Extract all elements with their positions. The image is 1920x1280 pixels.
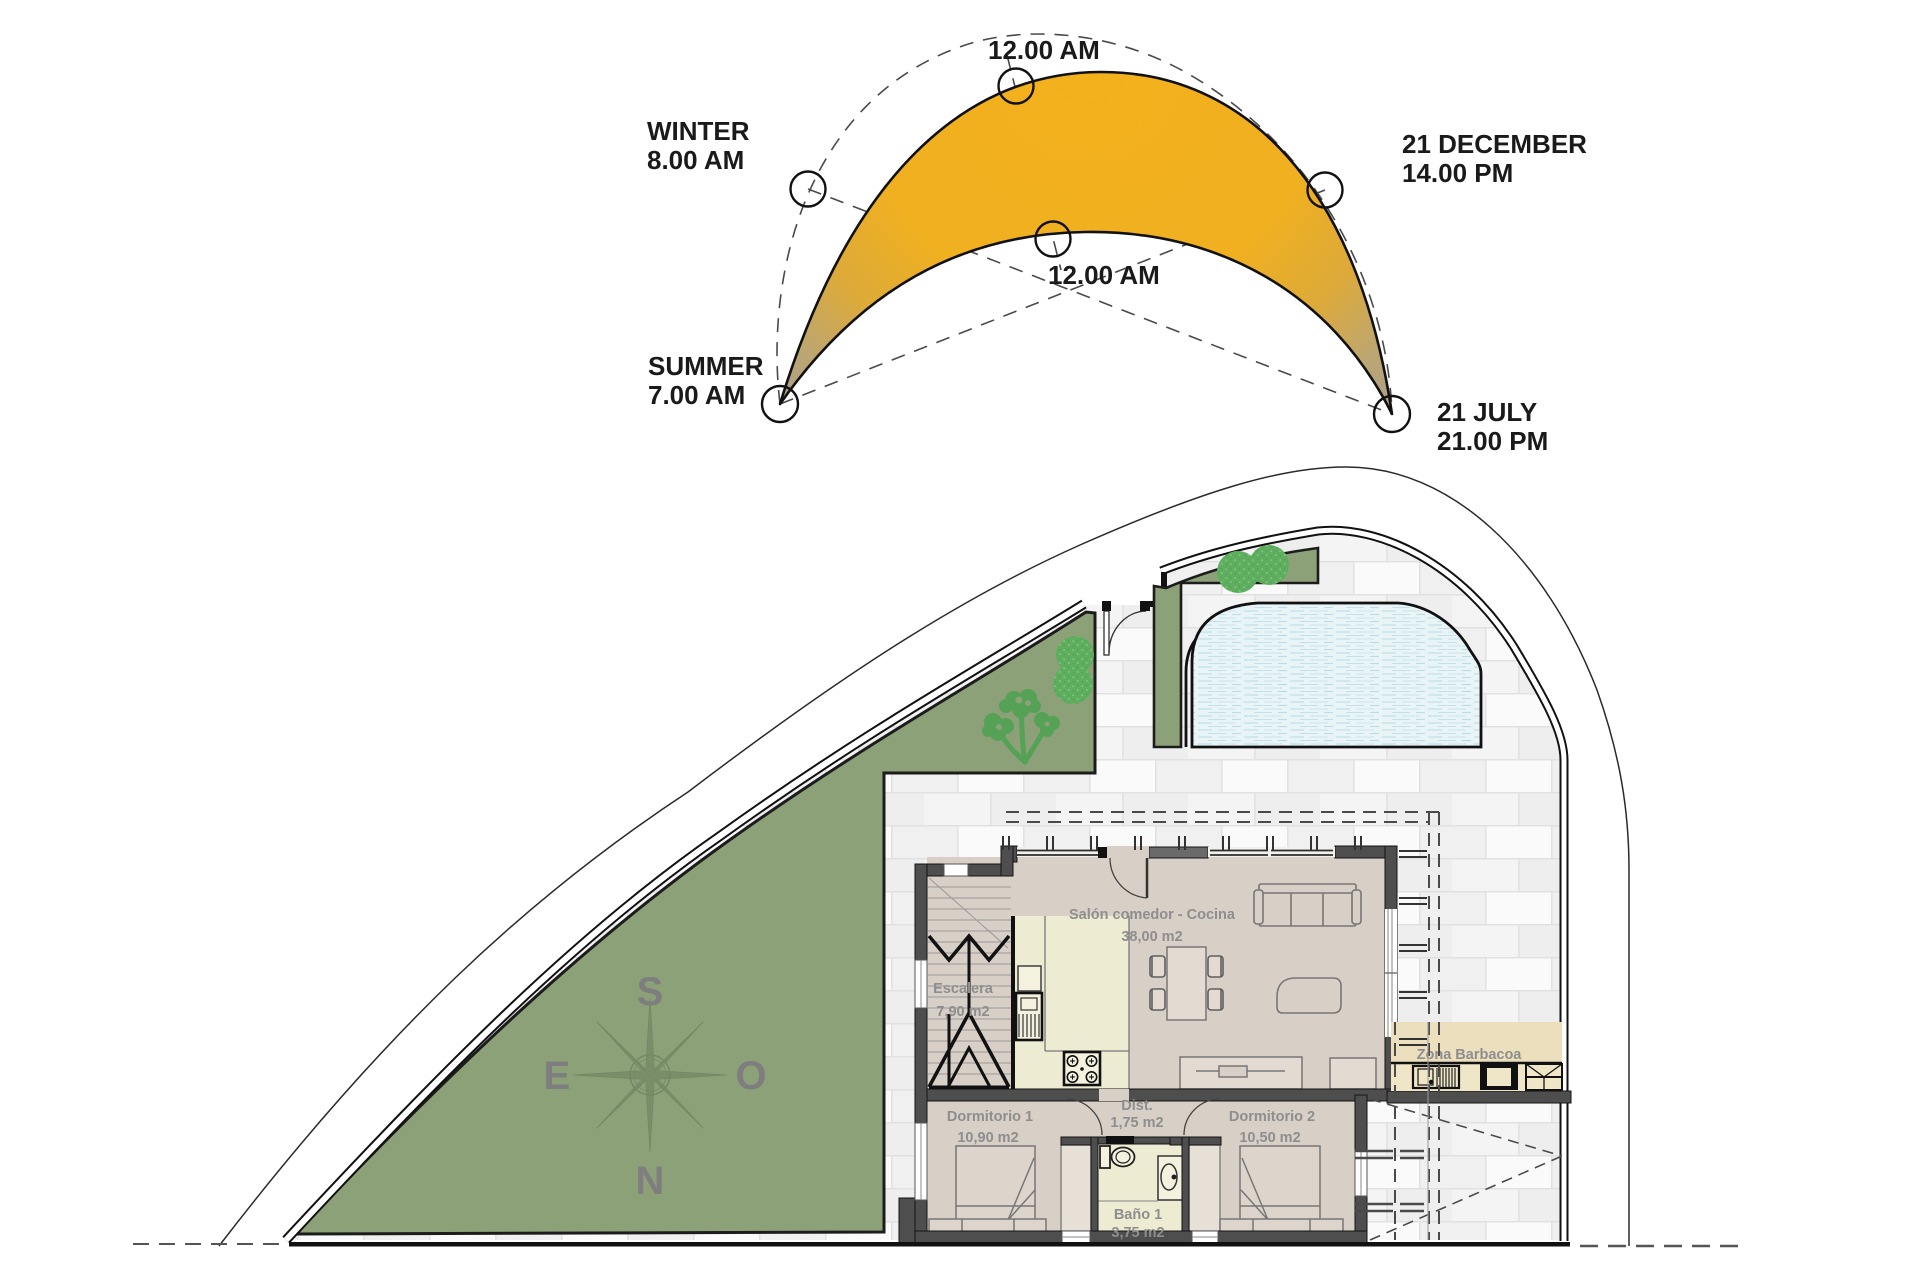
svg-text:Dormitorio 1: Dormitorio 1: [947, 1109, 1033, 1125]
svg-text:E: E: [544, 1054, 571, 1098]
svg-text:12.00 AM: 12.00 AM: [1048, 260, 1160, 290]
svg-text:N: N: [636, 1159, 665, 1203]
svg-text:21 DECEMBER: 21 DECEMBER: [1402, 129, 1587, 159]
svg-text:WINTER: WINTER: [647, 116, 750, 146]
svg-text:21 JULY: 21 JULY: [1437, 397, 1537, 427]
svg-text:Baño 1: Baño 1: [1114, 1207, 1162, 1223]
svg-text:7,90 m2: 7,90 m2: [936, 1004, 989, 1020]
svg-text:8.00 AM: 8.00 AM: [647, 145, 744, 175]
svg-text:SUMMER: SUMMER: [648, 351, 764, 381]
svg-text:Dist.: Dist.: [1121, 1098, 1152, 1114]
svg-text:Salón comedor - Cocina: Salón comedor - Cocina: [1069, 907, 1236, 923]
svg-text:14.00 PM: 14.00 PM: [1402, 158, 1513, 188]
svg-text:12.00 AM: 12.00 AM: [988, 35, 1100, 65]
svg-text:3,75 m2: 3,75 m2: [1111, 1225, 1164, 1241]
svg-text:S: S: [637, 970, 664, 1014]
svg-text:Zona Barbacoa: Zona Barbacoa: [1417, 1047, 1523, 1063]
svg-text:7.00 AM: 7.00 AM: [648, 380, 745, 410]
svg-text:1,75 m2: 1,75 m2: [1110, 1115, 1163, 1131]
svg-text:Dormitorio 2: Dormitorio 2: [1229, 1109, 1315, 1125]
svg-text:38,00 m2: 38,00 m2: [1121, 929, 1182, 945]
svg-text:10,90 m2: 10,90 m2: [957, 1130, 1018, 1146]
svg-text:21.00 PM: 21.00 PM: [1437, 426, 1548, 456]
svg-text:O: O: [735, 1054, 766, 1098]
svg-text:10,50 m2: 10,50 m2: [1239, 1130, 1300, 1146]
svg-text:Escalera: Escalera: [933, 981, 994, 997]
